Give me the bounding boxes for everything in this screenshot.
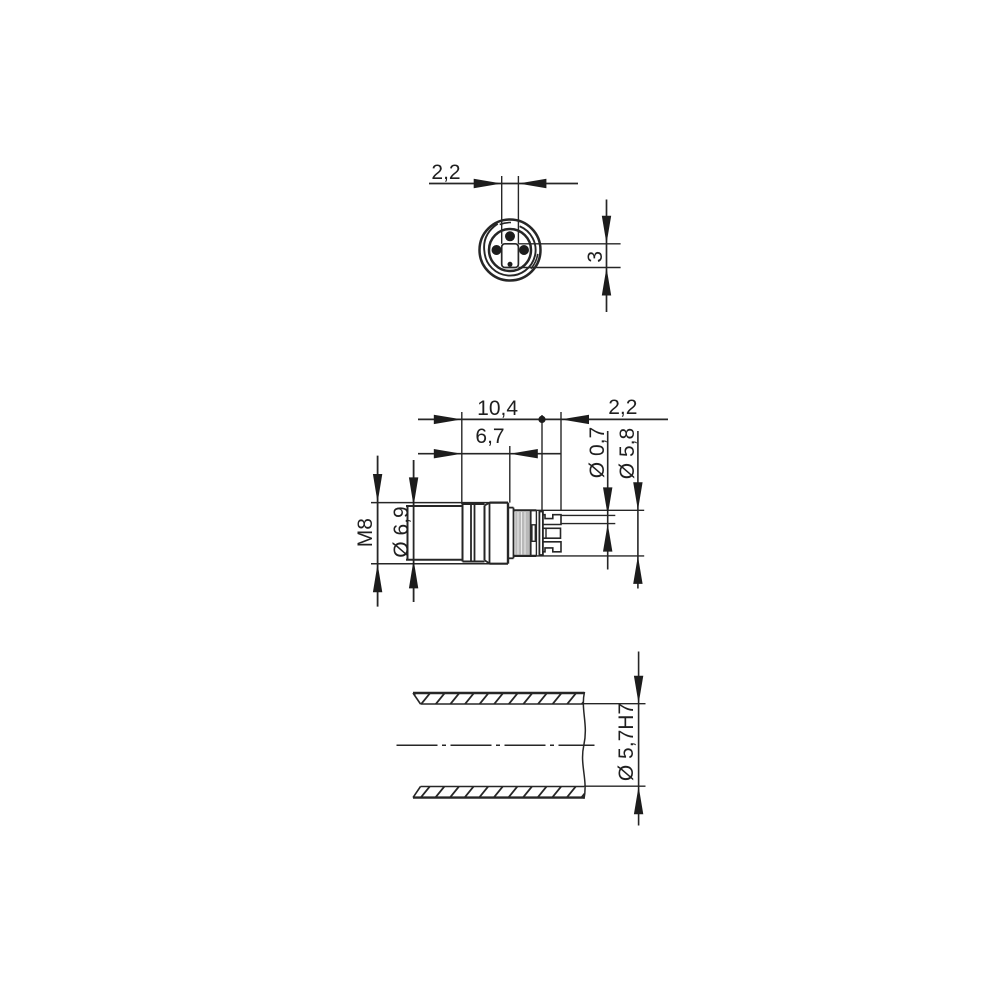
- svg-text:2,2: 2,2: [431, 161, 460, 184]
- svg-text:3: 3: [584, 251, 607, 263]
- svg-text:6,7: 6,7: [475, 425, 504, 448]
- svg-text:Ø 6,9: Ø 6,9: [390, 506, 413, 557]
- svg-text:2,2: 2,2: [608, 396, 637, 419]
- svg-text:Ø 0,7: Ø 0,7: [586, 427, 609, 478]
- svg-text:Ø 5,7H7: Ø 5,7H7: [615, 703, 638, 781]
- svg-text:Ø 5,8: Ø 5,8: [616, 428, 639, 479]
- svg-text:M8: M8: [354, 518, 377, 547]
- svg-text:10,4: 10,4: [477, 397, 518, 420]
